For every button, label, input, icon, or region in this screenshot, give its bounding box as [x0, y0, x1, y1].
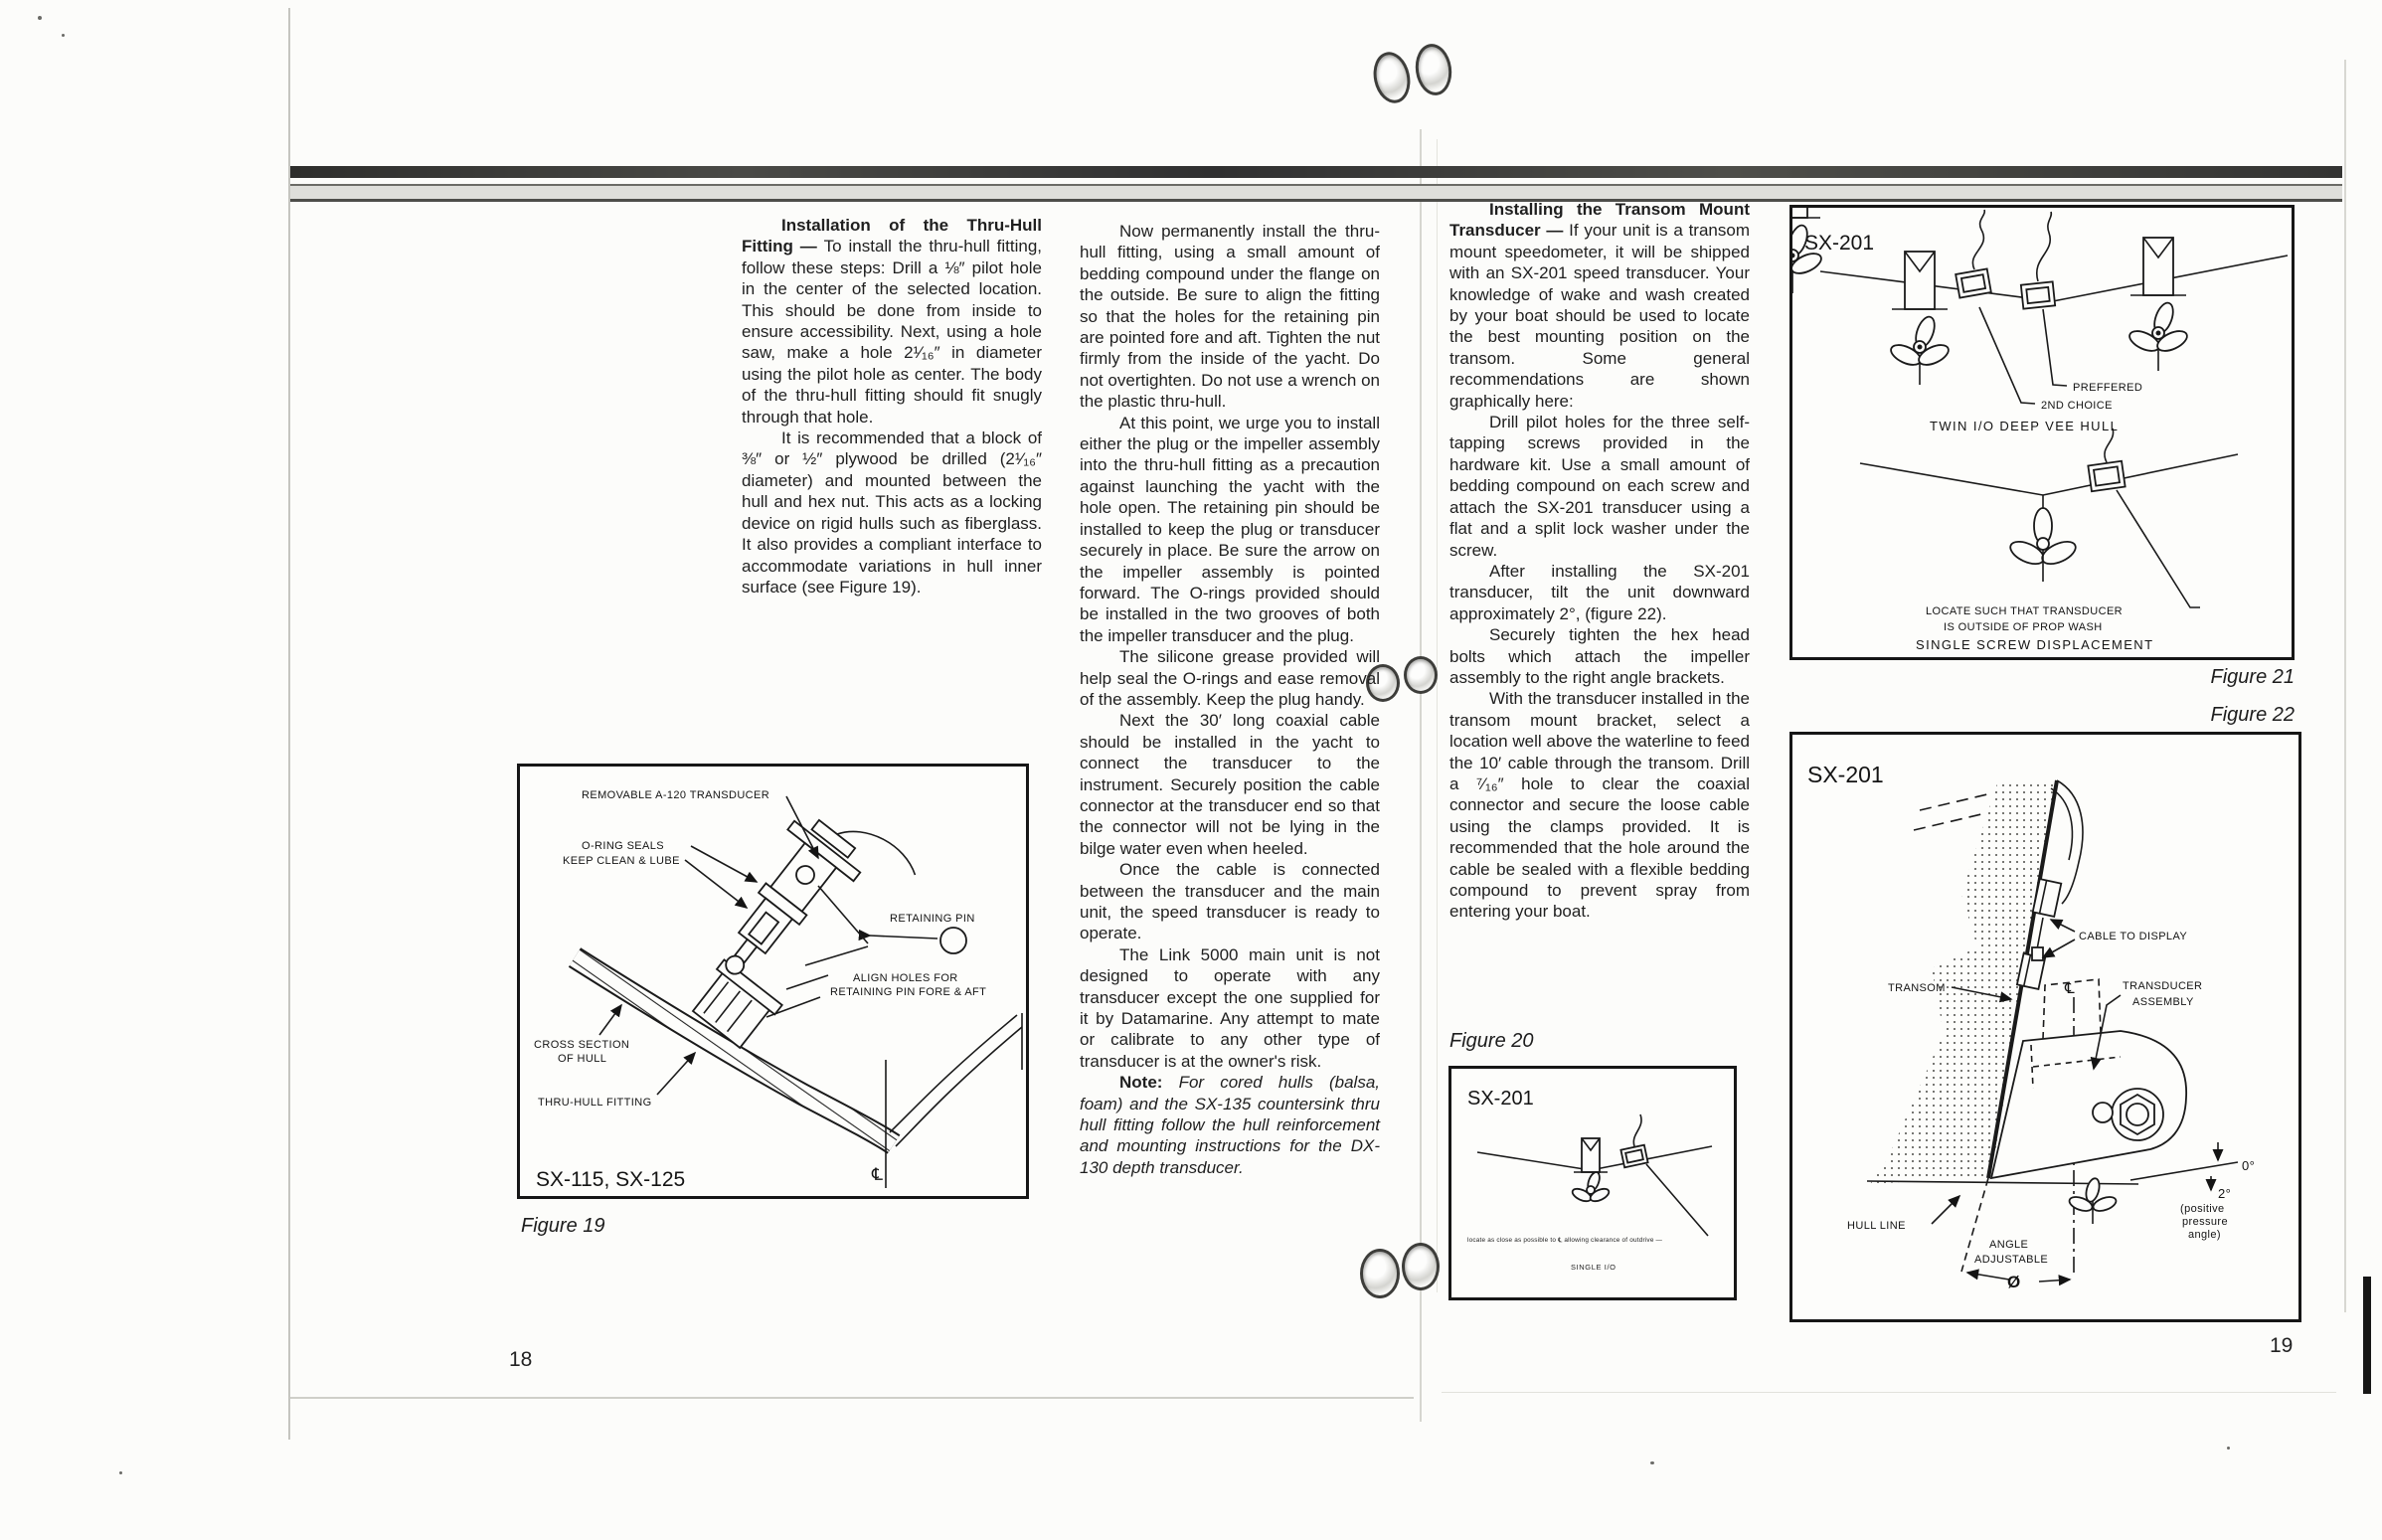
fig22-label-angle-1: ANGLE: [1989, 1239, 2028, 1251]
fig19-model-numbers: SX-115, SX-125: [536, 1168, 685, 1191]
binder-hole: [1402, 1243, 1440, 1290]
col3-paragraph-4: Securely tighten the hex head bolts whic…: [1449, 624, 1750, 688]
fig22-label-phi: Ø: [2007, 1273, 2021, 1291]
page-number-right: 19: [2270, 1334, 2293, 1358]
fig21-label-2nd-choice: 2ND CHOICE: [2041, 400, 2113, 412]
scanner-ink-mark: [2363, 1277, 2371, 1394]
fig19-label-align-holes-1: ALIGN HOLES FOR: [853, 972, 958, 984]
fig19-label-keep-clean: KEEP CLEAN & LUBE: [563, 855, 680, 867]
fig19-label-retaining-pin: RETAINING PIN: [890, 913, 975, 925]
scan-speck: [62, 34, 65, 37]
fig22-label-adjustable: ADJUSTABLE: [1974, 1254, 2048, 1266]
figure-21-box: SX-201: [1789, 205, 2295, 660]
fig22-label-transom: TRANSOM: [1888, 982, 1946, 994]
fig22-label-positive: (positive: [2180, 1203, 2225, 1215]
col2-note: Note: For cored hulls (balsa, foam) and …: [1080, 1072, 1380, 1178]
figure-22-box: SX-201 CABLE TO DISPLAY TRANSOM ℄: [1789, 732, 2301, 1322]
col1-p1-text: To install the thru-hull fitting, follow…: [742, 237, 1042, 426]
col3-p1-text: If your unit is a transom mount speedome…: [1449, 221, 1750, 410]
col2-paragraph-3: The silicone grease provided will help s…: [1080, 646, 1380, 710]
fig21-label-locate-1: LOCATE SUCH THAT TRANSDUCER: [1926, 605, 2123, 617]
page-number-left: 18: [509, 1348, 532, 1372]
left-page-edge: [288, 8, 290, 1440]
col2-paragraph-5: Once the cable is connected between the …: [1080, 859, 1380, 944]
fig20-label-single-io: SINGLE I/O: [1571, 1263, 1616, 1272]
scan-speck: [2227, 1447, 2230, 1450]
col2-paragraph-6: The Link 5000 main unit is not designed …: [1080, 944, 1380, 1072]
header-rule-light: [290, 184, 2342, 202]
col2-paragraph-4: Next the 30′ long coaxial cable should b…: [1080, 710, 1380, 859]
fig21-label-twin-io-hull: TWIN I/O DEEP VEE HULL: [1930, 419, 2119, 433]
fig19-label-cross-section: CROSS SECTION: [534, 1039, 629, 1051]
fig19-label-removable-transducer: REMOVABLE A-120 TRANSDUCER: [582, 789, 769, 801]
fig19-label-thru-hull-fitting: THRU-HULL FITTING: [538, 1097, 652, 1109]
binder-hole: [1369, 49, 1415, 106]
fig22-model: SX-201: [1807, 762, 1884, 787]
fig20-model: SX-201: [1467, 1088, 1534, 1110]
column-thru-hull-fitting: Installation of the Thru-Hull Fitting — …: [742, 215, 1042, 598]
figure-21-caption: Figure 21: [2175, 666, 2295, 689]
fig19-label-oring-seals: O-RING SEALS: [582, 840, 664, 852]
fig21-label-single-screw: SINGLE SCREW DISPLACEMENT: [1916, 637, 2153, 652]
col3-paragraph-2: Drill pilot holes for the three self-tap…: [1449, 412, 1750, 561]
col1-paragraph-2: It is recommended that a block of ⅜″ or …: [742, 428, 1042, 598]
header-rule-dark: [290, 166, 2342, 178]
binder-hole: [1360, 1249, 1400, 1298]
fig19-centerline-symbol: ℄: [871, 1165, 883, 1184]
note-label: Note:: [1119, 1073, 1179, 1092]
fig22-label-cable-to-display: CABLE TO DISPLAY: [2079, 931, 2187, 942]
figure-20-box: SX-201 locate as close as possible to ℄ …: [1448, 1066, 1737, 1300]
scan-speck: [38, 16, 42, 20]
figure-21-drawing: SX-201: [1792, 208, 2292, 657]
col3-paragraph-5: With the transducer installed in the tra…: [1449, 688, 1750, 922]
col2-paragraph-2: At this point, we urge you to install ei…: [1080, 413, 1380, 646]
fig19-label-of-hull: OF HULL: [558, 1053, 606, 1065]
figure-22-drawing: SX-201 CABLE TO DISPLAY TRANSOM ℄: [1792, 735, 2298, 1319]
figure-19-drawing: ℄: [520, 767, 1026, 1196]
column-transom-mount: Installing the Transom Mount Transducer …: [1449, 199, 1750, 923]
column-install-steps: Now permanently install the thru-hull fi…: [1080, 221, 1380, 1178]
col3-paragraph-3: After installing the SX-201 transducer, …: [1449, 561, 1750, 624]
figure-20-caption: Figure 20: [1449, 1030, 1534, 1053]
figure-22-caption: Figure 22: [2175, 704, 2295, 727]
fig20-note-text: locate as close as possible to ℄ allowin…: [1467, 1237, 1663, 1244]
center-seam-line: [1420, 129, 1422, 1422]
binder-hole: [1413, 42, 1455, 98]
figure-19-caption: Figure 19: [521, 1215, 605, 1238]
fig22-label-transducer: TRANSDUCER: [2123, 980, 2202, 992]
col3-paragraph-1: Installing the Transom Mount Transducer …: [1449, 199, 1750, 412]
fig22-label-hull-line: HULL LINE: [1847, 1220, 1906, 1232]
fig21-label-locate-2: IS OUTSIDE OF PROP WASH: [1944, 621, 2103, 633]
center-seam-line-2: [1437, 139, 1438, 1292]
figure-19-box: ℄: [517, 764, 1029, 1199]
right-page-edge: [2344, 60, 2346, 1312]
fig22-label-two-deg: 2°: [2218, 1186, 2231, 1201]
right-page-bottom-edge: [1442, 1392, 2336, 1393]
fig21-label-preferred: PREFFERED: [2073, 382, 2142, 394]
fig21-model: SX-201: [1804, 232, 1874, 255]
scan-speck: [119, 1471, 122, 1474]
fig22-label-assembly: ASSEMBLY: [2132, 996, 2194, 1008]
fig22-label-zero-deg: 0°: [2242, 1158, 2255, 1173]
fig22-label-pressure: pressure: [2182, 1216, 2228, 1228]
binder-hole: [1404, 656, 1438, 694]
scanned-manual-spread: Installation of the Thru-Hull Fitting — …: [0, 0, 2382, 1540]
figure-20-drawing: SX-201 locate as close as possible to ℄ …: [1451, 1069, 1734, 1297]
left-page-bottom-curl: [290, 1397, 1414, 1399]
fig19-label-align-holes-2: RETAINING PIN FORE & AFT: [830, 986, 986, 998]
col2-paragraph-1: Now permanently install the thru-hull fi…: [1080, 221, 1380, 413]
scan-speck: [1650, 1461, 1654, 1464]
col1-paragraph-1: Installation of the Thru-Hull Fitting — …: [742, 215, 1042, 428]
fig22-label-angle: angle): [2188, 1229, 2221, 1241]
